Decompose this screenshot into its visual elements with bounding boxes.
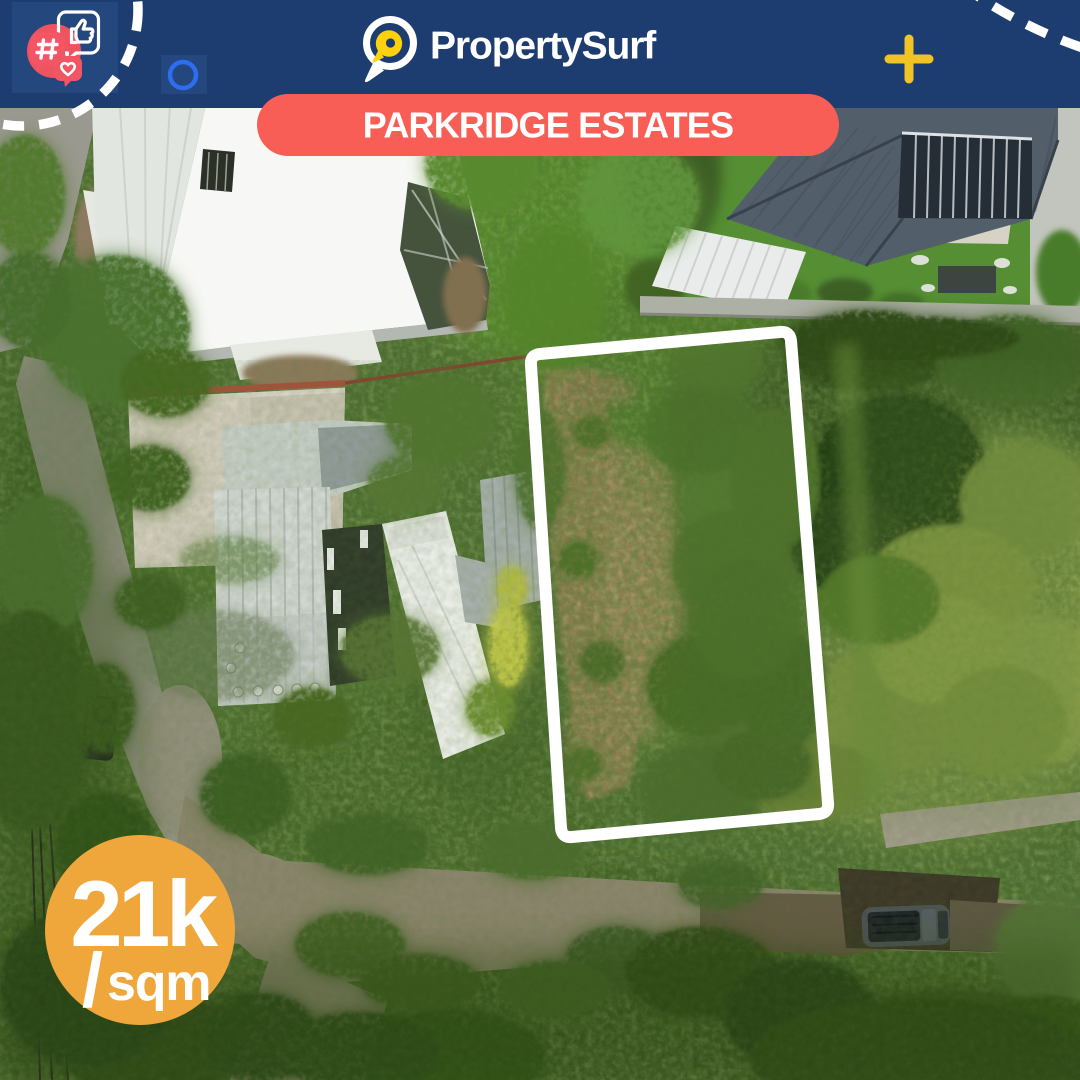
svg-text:/: / bbox=[82, 938, 103, 1023]
svg-text:PropertySurf: PropertySurf bbox=[430, 25, 657, 68]
svg-text:PARKRIDGE ESTATES: PARKRIDGE ESTATES bbox=[363, 105, 733, 146]
svg-text:sqm: sqm bbox=[107, 954, 210, 1012]
